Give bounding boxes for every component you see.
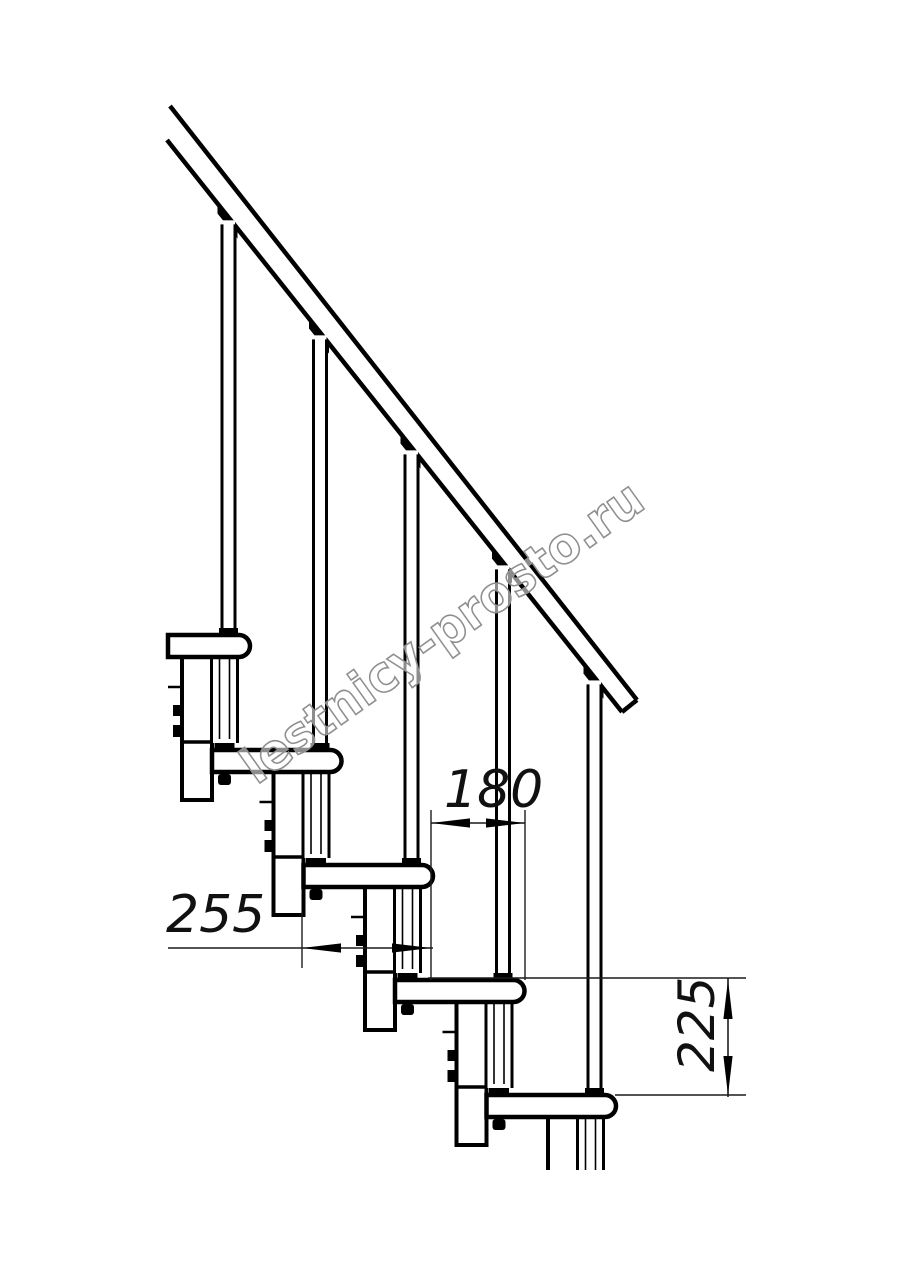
under-tread-nut — [218, 774, 231, 785]
post-body — [222, 220, 235, 635]
staircase-drawing: 180 255 225 lestnicy-prosto.ru — [0, 0, 914, 1280]
under-tread-nut — [310, 889, 323, 900]
module-bolt — [448, 1070, 457, 1082]
module-bolt — [173, 725, 182, 737]
module-bolt — [173, 705, 182, 716]
module-body — [274, 772, 304, 915]
post-foot-5 — [585, 1088, 604, 1095]
module-body — [548, 1117, 578, 1170]
post-foot-1 — [219, 628, 238, 635]
post-foot-4 — [494, 973, 513, 980]
post-foot-3 — [402, 858, 421, 865]
module-4 — [443, 1002, 489, 1145]
under-tread-nut — [493, 1119, 506, 1130]
dimension-going: 180 — [431, 760, 543, 980]
module-5 — [548, 1117, 578, 1170]
module-body — [182, 657, 212, 800]
post-5 — [584, 665, 604, 1095]
tube-body — [486, 1002, 512, 1088]
arrowhead-left — [302, 943, 341, 952]
dimension-depth-value: 255 — [166, 885, 265, 945]
tread-3 — [304, 865, 434, 887]
module-bolt — [265, 820, 274, 831]
module-1 — [168, 657, 214, 800]
handrail — [167, 106, 637, 712]
tread-5 — [487, 1095, 617, 1117]
tread-1 — [168, 635, 250, 657]
module-bolt — [356, 935, 365, 946]
module-bolt — [448, 1050, 457, 1061]
tread-4 — [395, 980, 525, 1002]
module-bolt — [356, 955, 365, 967]
post-body — [588, 680, 601, 1095]
module-2 — [260, 772, 306, 915]
dimension-rise-value: 225 — [668, 977, 726, 1072]
tube-body — [395, 887, 421, 973]
technical-drawing-page: 180 255 225 lestnicy-prosto.ru — [0, 0, 914, 1280]
under-tread-nut — [401, 1004, 414, 1015]
tube-body — [578, 1117, 604, 1170]
tube-body — [303, 772, 329, 858]
tube-body — [212, 657, 238, 743]
post-1 — [218, 204, 238, 635]
module-body — [457, 1002, 487, 1145]
module-3 — [351, 887, 397, 1030]
module-bolt — [265, 840, 274, 852]
dimension-going-value: 180 — [444, 760, 543, 820]
module-body — [365, 887, 395, 1030]
post-tube-5 — [578, 1117, 604, 1170]
handrail-body — [167, 106, 637, 712]
